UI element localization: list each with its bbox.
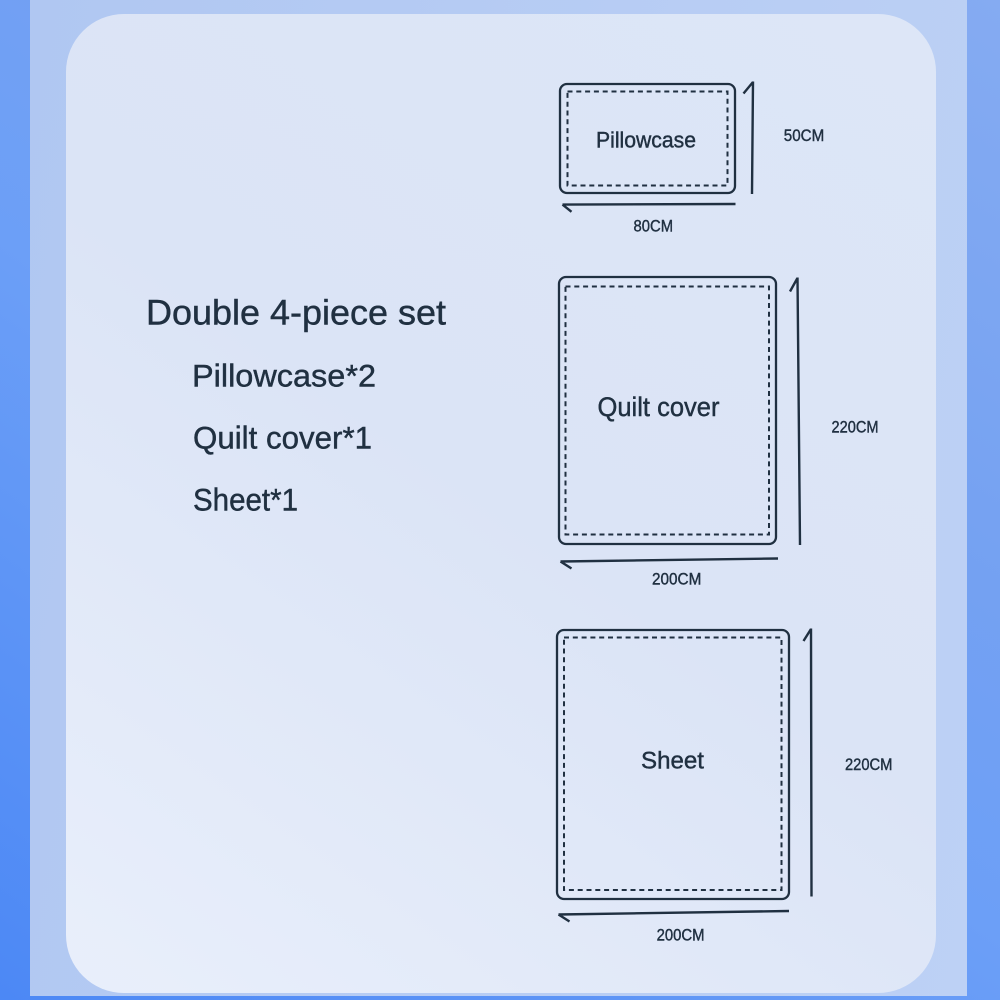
svg-text:Sheet*1: Sheet*1 [193,481,298,517]
svg-text:Double 4-piece set: Double 4-piece set [146,293,446,332]
svg-text:220CM: 220CM [845,755,893,774]
svg-text:Quilt cover*1: Quilt cover*1 [193,419,372,455]
svg-text:Sheet: Sheet [641,747,704,774]
svg-text:Quilt cover: Quilt cover [598,392,720,422]
svg-text:200CM: 200CM [652,570,701,589]
svg-text:220CM: 220CM [832,418,879,437]
svg-text:80CM: 80CM [634,217,674,236]
svg-text:200CM: 200CM [657,926,705,945]
svg-text:50CM: 50CM [784,126,825,145]
svg-text:Pillowcase*2: Pillowcase*2 [192,358,376,394]
svg-text:Pillowcase: Pillowcase [596,128,696,153]
